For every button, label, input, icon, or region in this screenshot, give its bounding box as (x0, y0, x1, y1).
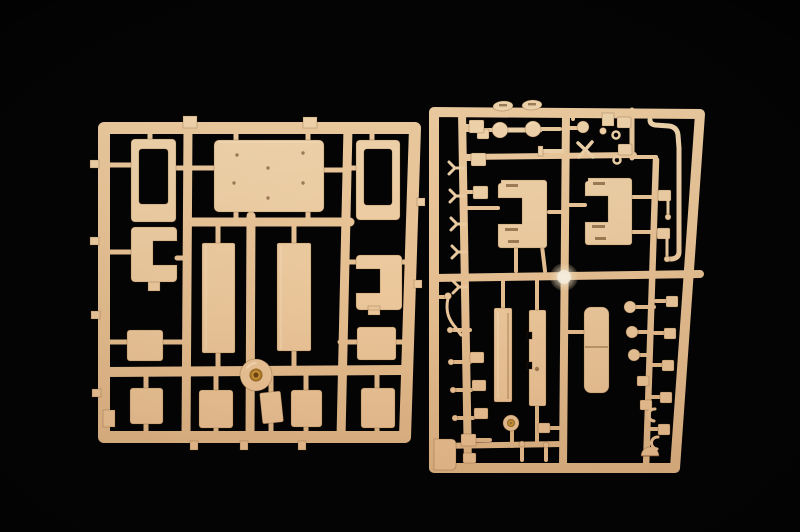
vignette-overlay (0, 0, 800, 532)
sprue-photo-svg (0, 0, 800, 532)
sprue-photo: Macro photograph of two tan plastic inje… (0, 0, 800, 532)
